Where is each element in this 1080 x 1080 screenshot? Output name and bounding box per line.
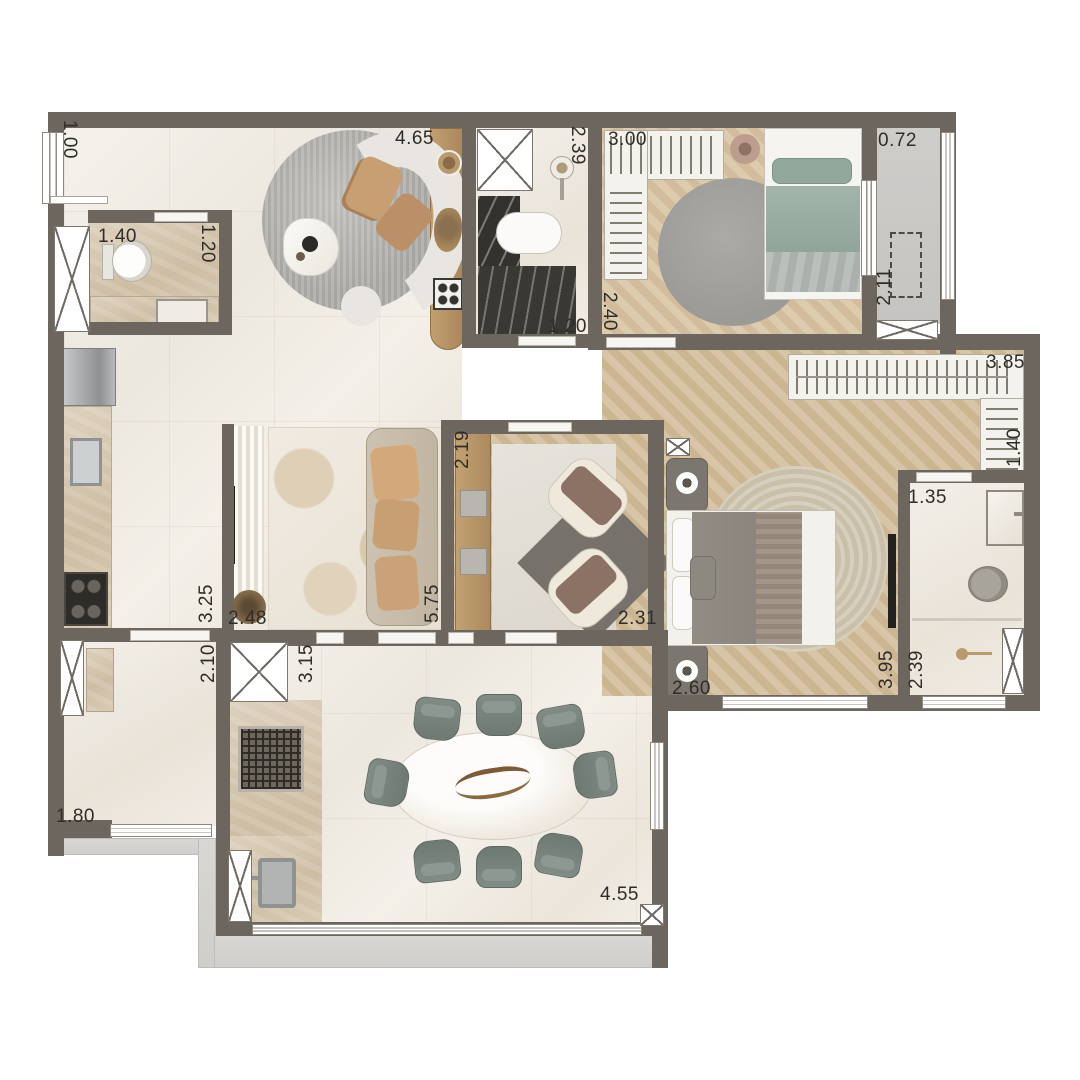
bath1-door: [154, 212, 208, 222]
island-round-sink: [436, 150, 462, 176]
master-throw-pillow: [690, 556, 716, 600]
master-closet-rod: [796, 376, 1008, 378]
curtain-panel: [234, 426, 264, 604]
leftroom-door: [130, 630, 210, 641]
sofa-endcap: [341, 286, 381, 326]
dim-closet-w: 3.85: [986, 352, 1025, 374]
leftroom-bottom-window: [110, 824, 212, 837]
dim-bath2-w: 1.20: [548, 316, 587, 338]
balcony-corner-window: [640, 904, 664, 926]
wall-bath1-bottom: [88, 322, 232, 335]
entry-sill: [50, 196, 108, 204]
kitchen-sink: [70, 438, 102, 486]
master-runner: [756, 512, 802, 644]
dim-tvroom-w: 2.19: [452, 430, 474, 469]
shower-arm: [966, 652, 992, 655]
shower-divider: [912, 618, 1022, 621]
tvroom-window-1: [448, 632, 474, 644]
service-shaft-large: [230, 642, 288, 702]
dim-dining-w: 4.55: [600, 884, 639, 906]
dim-kitchen-d: 3.25: [196, 584, 218, 623]
tvroom-door: [508, 422, 572, 432]
laundry-shaft-window: [228, 850, 252, 922]
bath3-shaft-window: [1002, 628, 1024, 694]
left-room-cabinet: [86, 648, 114, 712]
bath2-window: [477, 129, 533, 191]
dining-chair-4: [412, 838, 462, 885]
wall-top: [48, 112, 956, 128]
pedestal-sink-stem: [560, 178, 564, 200]
wall-bedroom1-terrace: [862, 128, 877, 180]
dim-bath2-d: 2.39: [566, 126, 588, 165]
bath3-window: [922, 696, 1006, 709]
dim-living-w: 4.65: [395, 128, 434, 150]
bedroom1-terrace-door: [861, 180, 877, 276]
sofa2-cushion-2: [372, 498, 420, 552]
wall-sofa-room-left: [222, 424, 234, 630]
dim-tvroom-d: 2.31: [618, 608, 657, 630]
bedroom1-pouf: [730, 134, 760, 164]
bath1-shaft-window: [54, 226, 90, 332]
bathtub: [496, 212, 562, 254]
dim-master-w: 2.60: [672, 678, 711, 700]
dining-sliding-door: [252, 924, 642, 935]
terrace-shaft-window: [876, 320, 938, 340]
balcony-strip-left: [62, 838, 212, 855]
dim-master-d: 3.95: [876, 650, 898, 689]
media-console-2: [460, 548, 487, 575]
sofa-room-window-1: [316, 632, 344, 644]
dining-right-window: [650, 742, 664, 830]
island-cooktop-burners: [436, 282, 460, 306]
sofa2-cushion-1: [369, 444, 420, 503]
bath3-door: [916, 472, 972, 482]
master-corner-shaft: [666, 438, 690, 456]
floor-grate: [238, 726, 304, 792]
media-console-1: [460, 490, 487, 517]
wall-right-lower: [1024, 350, 1040, 711]
tvroom-window-2: [505, 632, 557, 644]
terrace-right-glazing: [941, 132, 955, 300]
dim-terrace1-w: 0.72: [878, 130, 917, 152]
laundry-sink: [258, 858, 296, 908]
dim-bath1-d: 1.20: [196, 224, 218, 263]
sofa2-cushion-3: [374, 555, 420, 612]
vanity-3: [986, 490, 1024, 546]
balcony-strip-bottom: [214, 934, 654, 968]
dim-terrace1-d: 2.11: [874, 268, 896, 306]
dining-chair-8: [571, 749, 619, 800]
dim-sofa-room-w: 2.48: [228, 608, 267, 630]
coffee-table-decor-2: [296, 252, 305, 261]
nightstand-top-lamp: [676, 472, 698, 494]
vanity-1-sink: [156, 299, 208, 324]
sofa-room-window-2: [378, 632, 436, 644]
dim-living-d: 5.75: [422, 584, 444, 623]
toilet-bowl-3: [968, 566, 1008, 602]
dining-chair-2: [476, 694, 522, 736]
bed1-pillow: [772, 158, 852, 184]
cooktop-left-burners: [70, 578, 102, 620]
vanity-3-tap: [1014, 512, 1024, 516]
dining-chair-1: [412, 696, 462, 743]
floor-plan: 1.00 1.40 1.20 4.65 2.39 3.00 0.72 2.11 …: [0, 0, 1080, 1080]
dim-bath1-w: 1.40: [98, 226, 137, 248]
dim-bath3-d: 2.39: [906, 650, 928, 689]
bed1-duvet: [766, 186, 860, 258]
leftroom-shaft-window: [60, 640, 84, 716]
bedroom1-closet-left-hangers: [610, 184, 642, 274]
dim-closet-d: 1.40: [1004, 428, 1026, 467]
dim-entry: 1.00: [58, 120, 80, 159]
wall-island-bath2: [462, 128, 476, 348]
wall-bath1-right: [219, 210, 232, 326]
coffee-table-decor: [302, 236, 318, 252]
dim-leftroom-w: 2.10: [198, 644, 220, 683]
bed1-blanket: [766, 252, 860, 292]
master-window: [722, 696, 868, 709]
dim-bedroom1-d: 2.40: [598, 292, 620, 331]
dining-chair-5: [476, 846, 522, 888]
fridge: [62, 348, 116, 406]
dim-service-d: 3.15: [296, 644, 318, 683]
dim-bath3-w: 1.35: [908, 487, 947, 509]
hall-door: [606, 337, 676, 348]
dim-bedroom1-w: 3.00: [608, 129, 647, 151]
dim-leftroom-d: 1.80: [56, 806, 95, 828]
master-tv: [888, 534, 896, 628]
